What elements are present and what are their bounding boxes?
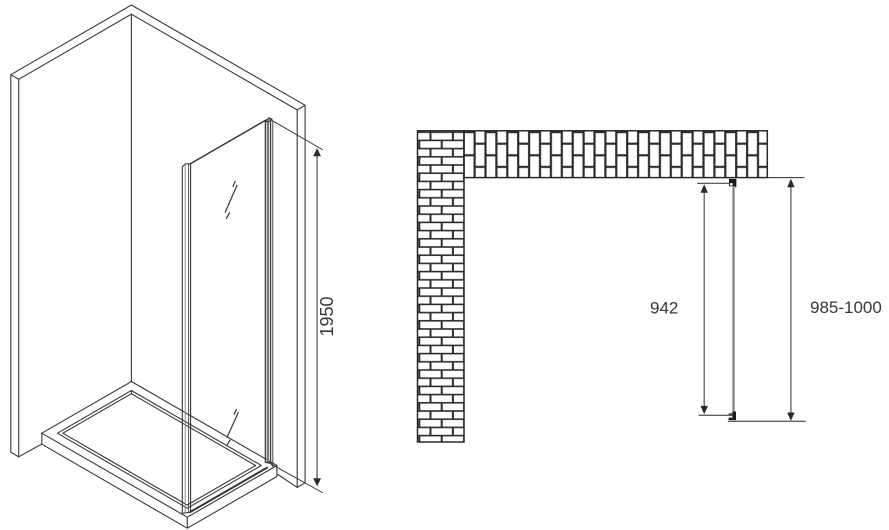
svg-text:1950: 1950 <box>317 296 337 336</box>
svg-text:985-1000: 985-1000 <box>810 298 882 317</box>
svg-text:942: 942 <box>650 299 678 318</box>
